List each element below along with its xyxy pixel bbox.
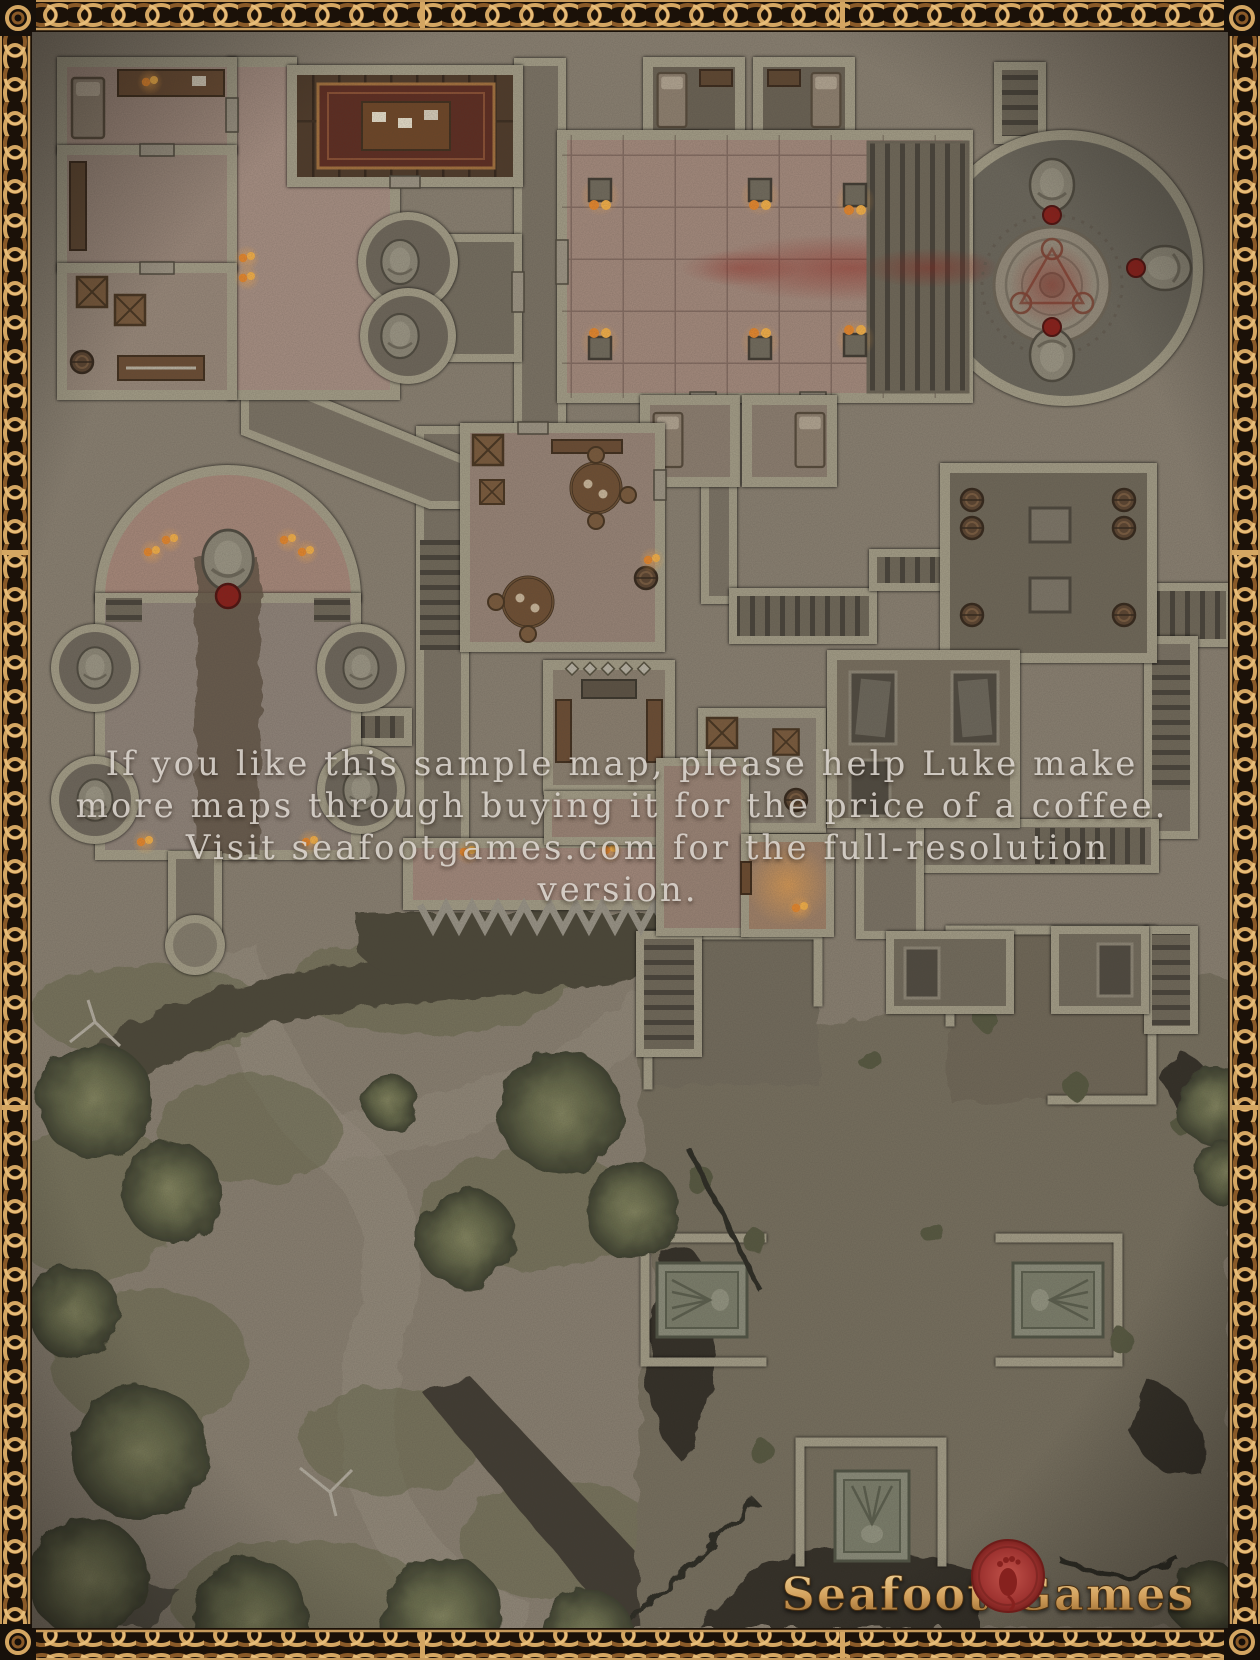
- border-top: [0, 0, 1260, 30]
- border-bottom: [0, 1630, 1260, 1660]
- footprint-wax-seal-icon: [972, 1540, 1044, 1612]
- battle-map: If you like this sample map, please help…: [0, 0, 1260, 1660]
- border-left: [0, 0, 30, 1660]
- footprint-sole: [999, 1568, 1017, 1596]
- overlay-line-4: version.: [536, 870, 698, 910]
- border-corner-knot: [1224, 0, 1260, 36]
- overlay-line-2: more maps through buying it for the pric…: [76, 786, 1169, 826]
- border-corner-knot: [0, 1624, 36, 1660]
- border-right: [1230, 0, 1260, 1660]
- border-corner-knot: [0, 0, 36, 36]
- overlay-line-3: Visit seafootgames.com for the full-reso…: [185, 828, 1110, 868]
- overlay-line-1: If you like this sample map, please help…: [106, 744, 1139, 784]
- border-corner-knot: [1224, 1624, 1260, 1660]
- logo-word-seafoot: Seafoot: [782, 1567, 991, 1621]
